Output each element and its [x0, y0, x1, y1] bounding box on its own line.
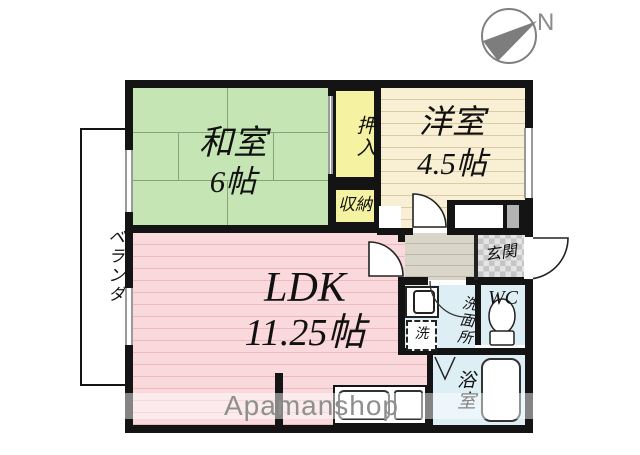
washitsu-size-label: 6帖 — [158, 166, 308, 199]
wall-hall-senmenjo-left — [398, 277, 428, 285]
wc-label: WC — [481, 288, 525, 309]
ldk-name-label: LDK — [210, 266, 400, 310]
ldk-size-label: 11.25帖 — [190, 314, 420, 354]
front-door-gap — [524, 237, 533, 279]
window-yoshitsu — [524, 128, 533, 198]
wall-closet-divider — [328, 180, 377, 187]
entrance-window — [507, 205, 519, 228]
wall-washitsu-ldk — [125, 225, 381, 233]
window-washitsu — [125, 150, 133, 212]
fusuma-sliding-door — [328, 96, 333, 174]
compass-icon: N — [482, 9, 554, 63]
window-ldk — [125, 288, 133, 345]
watermark-text: Apamanshop — [224, 390, 399, 422]
shoe-cabinet — [455, 205, 503, 228]
veranda-label: ベランダ — [84, 200, 123, 332]
floor-plan: 洗 N — [0, 0, 640, 455]
compass-north-label: N — [537, 9, 554, 36]
washbasin-bowl-icon — [413, 290, 435, 314]
washitsu-name-label: 和室 — [158, 126, 308, 162]
hallway — [405, 233, 475, 280]
yoshitsu-name-label: 洋室 — [383, 106, 521, 141]
oshiire-label: 押入 — [336, 98, 374, 176]
wall-yoshitsu-bottom — [377, 228, 413, 235]
yoshitsu-size-label: 4.5帖 — [383, 148, 521, 181]
wall-ldk-hall-upper — [398, 233, 405, 242]
closet-door-niche — [379, 206, 401, 228]
front-door-arc — [527, 238, 568, 279]
shuno-label: 収納 — [333, 196, 377, 214]
